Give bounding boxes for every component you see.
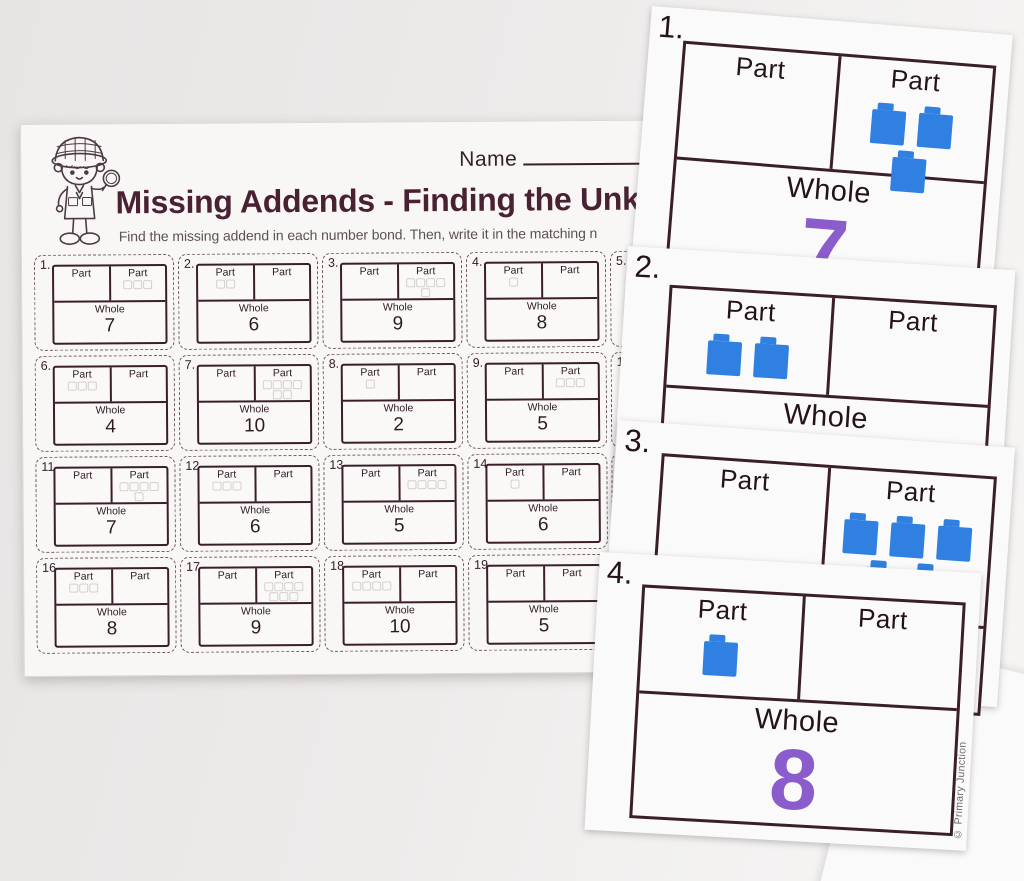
part-part-whole-box: Part Part Whole 6: [485, 463, 601, 544]
part-label: Part: [199, 468, 254, 480]
part-part-whole-box: Part Part Whole 10: [197, 364, 313, 445]
whole-label: Whole: [200, 605, 311, 618]
part-part-whole-box: Part Part Whole 10: [342, 565, 458, 646]
faint-cube-group: [115, 482, 163, 501]
whole-label: Whole: [199, 403, 310, 416]
bond-number-label: 7.: [185, 358, 196, 372]
part-label: Part: [662, 459, 827, 501]
part-part-whole-box: Part Part Whole 7: [52, 264, 168, 345]
part-cell-right: Part: [110, 468, 167, 502]
part-label: Part: [401, 568, 456, 580]
part-part-whole-box: Part Part Whole 4: [53, 365, 169, 446]
whole-label: Whole: [486, 300, 597, 313]
faint-cube-icon: [263, 380, 272, 389]
whole-cell: Whole 9: [342, 300, 453, 341]
part-cell-right: Part: [826, 298, 994, 405]
whole-value: 5: [344, 515, 455, 537]
parts-row: Part Part: [56, 569, 167, 606]
faint-cube-icon: [140, 482, 149, 491]
part-cell-right: Part: [543, 566, 600, 600]
worksheet-title: Missing Addends - Finding the Unk: [115, 181, 639, 222]
part-label: Part: [198, 266, 253, 278]
number-bond: 18. Part Part Whole 10: [324, 555, 465, 652]
faint-cube-icon: [290, 592, 299, 601]
part-label: Part: [543, 365, 598, 377]
part-cell-right: Part: [255, 568, 312, 602]
part-cell-left: Part: [343, 365, 398, 399]
faint-cube-group: [491, 479, 539, 488]
faint-cube-group: [403, 480, 451, 489]
card-number-label: 2.: [634, 248, 662, 286]
bond-number-label: 9.: [473, 356, 484, 370]
part-label: Part: [542, 264, 597, 276]
whole-value: 2: [343, 414, 454, 436]
faint-cube-icon: [274, 582, 283, 591]
faint-cube-icon: [428, 480, 437, 489]
number-bond: 8. Part Part Whole 2: [323, 353, 464, 450]
part-cell-right: Part: [541, 364, 598, 398]
whole-cell: Whole 6: [200, 503, 311, 544]
part-cell-left: Part: [343, 466, 398, 500]
part-part-whole-box: Part Part Whole 5: [341, 464, 457, 545]
part-label: Part: [838, 59, 992, 102]
faint-cube-icon: [216, 280, 225, 289]
faint-cube-icon: [566, 378, 575, 387]
name-row: Name: [459, 146, 660, 171]
number-bond: 2. Part Part Whole 6: [178, 253, 319, 350]
parts-row: Part Part: [488, 566, 599, 603]
whole-label: Whole: [55, 404, 166, 417]
faint-cube-group: [346, 379, 394, 388]
bond-number-label: 3.: [328, 256, 339, 270]
number-bond-grid: 1. Part Part Whole 7 2. Pa: [34, 251, 660, 667]
number-bond: 16. Part Part Whole 8: [36, 557, 177, 654]
whole-cell: Whole 10: [199, 402, 310, 443]
part-label: Part: [545, 567, 600, 579]
part-cell-right: Part: [540, 263, 597, 297]
part-label: Part: [544, 466, 599, 478]
whole-label: Whole: [54, 303, 165, 316]
whole-label: Whole: [343, 402, 454, 415]
part-label: Part: [344, 568, 399, 580]
part-cell-left: Part: [55, 367, 110, 401]
faint-cube-icon: [408, 480, 417, 489]
whole-value: 6: [488, 514, 599, 536]
faint-cube-icon: [352, 582, 361, 591]
number-bond: 1. Part Part Whole 7: [34, 254, 175, 351]
part-cell-right: Part: [254, 467, 311, 501]
part-cell-left: Part: [56, 569, 111, 603]
faint-cube-icon: [510, 480, 519, 489]
part-label: Part: [343, 366, 398, 378]
faint-cube-icon: [421, 288, 430, 297]
part-label: Part: [487, 466, 542, 478]
whole-value: 5: [488, 615, 599, 637]
parts-row: Part Part: [198, 265, 309, 302]
whole-label: Whole: [198, 302, 309, 315]
number-bond: 14. Part Part Whole 6: [467, 453, 608, 550]
number-bond: 9. Part Part Whole 5: [467, 352, 608, 449]
part-label: Part: [833, 301, 994, 342]
part-label: Part: [54, 267, 109, 279]
cube-group: [664, 639, 776, 679]
bond-number-label: 4.: [472, 255, 483, 269]
part-part-whole-box: Part Part Whole 9: [198, 566, 314, 647]
number-bond: 7. Part Part Whole 10: [179, 354, 320, 451]
parts-row: Part Part: [54, 266, 165, 303]
hat-dome: [55, 137, 103, 160]
faint-cube-icon: [232, 481, 241, 490]
faint-cube-icon: [79, 584, 88, 593]
part-cell-right: Part: [108, 266, 165, 300]
whole-cell: Whole 8: [632, 693, 956, 833]
part-label: Part: [254, 266, 309, 278]
whole-cell: Whole 6: [488, 501, 599, 542]
whole-cell: Whole 5: [344, 502, 455, 543]
card-number-label: 1.: [657, 9, 686, 47]
part-part-whole-box: Part Part Whole 7: [53, 466, 169, 547]
part-cell-left: Part: [55, 468, 110, 502]
faint-cube-icon: [294, 582, 303, 591]
part-label: Part: [111, 368, 166, 380]
part-cell-right: Part: [542, 465, 599, 499]
part-cell-left: Part: [199, 366, 254, 400]
faint-cube-icon: [78, 382, 87, 391]
faint-cube-icon: [212, 482, 221, 491]
part-part-whole-box: Part Part Whole 5: [486, 564, 602, 645]
number-bond: 12. Part Part Whole 6: [179, 455, 320, 552]
part-label: Part: [257, 569, 312, 581]
whole-value: 8: [56, 618, 167, 640]
whole-label: Whole: [344, 604, 455, 617]
part-cell-left: Part: [639, 588, 802, 700]
whole-value: 9: [342, 313, 453, 335]
part-label: Part: [55, 469, 110, 481]
part-label: Part: [199, 367, 254, 379]
part-label: Part: [398, 265, 453, 277]
parts-row: Part Part: [200, 568, 311, 605]
cube-group: [682, 339, 814, 381]
part-cell-left: Part: [488, 566, 543, 600]
faint-cube-icon: [416, 278, 425, 287]
whole-value: 10: [199, 415, 310, 437]
parts-row: Part Part: [342, 264, 453, 301]
part-cell-left: Part: [487, 364, 542, 398]
whole-value: 8: [486, 312, 597, 334]
parts-row: Part Part: [344, 567, 455, 604]
blue-cube-icon: [870, 109, 907, 146]
part-part-whole-box: Part Part Whole 6: [196, 263, 312, 344]
part-label: Part: [343, 467, 398, 479]
number-bond: 17. Part Part Whole 9: [180, 556, 321, 653]
hat-brim: [52, 153, 106, 167]
part-label: Part: [112, 469, 167, 481]
bond-number-label: 2.: [184, 257, 195, 271]
blue-cube-icon: [917, 113, 954, 150]
faint-cube-icon: [382, 581, 391, 590]
number-bond: 11. Part Part Whole 7: [35, 456, 176, 553]
cube-group: [826, 648, 936, 654]
faint-cube-group: [547, 378, 595, 387]
faint-cube-group: [114, 280, 162, 289]
part-label: Part: [200, 569, 255, 581]
faint-cube-icon: [120, 482, 129, 491]
part-cell-left: Part: [199, 467, 254, 501]
faint-cube-icon: [69, 584, 78, 593]
whole-value: 4: [55, 416, 166, 438]
part-label: Part: [255, 367, 310, 379]
whole-value: 6: [200, 516, 311, 538]
whole-cell: Whole 8: [486, 299, 597, 340]
faint-cube-icon: [406, 278, 415, 287]
part-cell-left: Part: [344, 567, 399, 601]
faint-cube-icon: [576, 378, 585, 387]
bond-number-label: 8.: [329, 357, 340, 371]
part-label: Part: [487, 365, 542, 377]
faint-cube-icon: [438, 480, 447, 489]
parts-row: Part Part: [55, 468, 166, 505]
part-label: Part: [55, 368, 110, 380]
number-bond: 19. Part Part Whole 5: [468, 554, 609, 651]
part-label: Part: [488, 567, 543, 579]
part-cell-left: Part: [666, 288, 831, 395]
whole-label: Whole: [200, 504, 311, 517]
part-cell-left: Part: [487, 465, 542, 499]
faint-cube-group: [347, 581, 395, 590]
parts-row: Part Part: [487, 465, 598, 502]
task-card: 4. Part Part Whole 8 © Primary Junction: [584, 552, 981, 851]
part-cell-right: Part: [829, 56, 993, 181]
part-part-whole-box: Part Part Whole 8: [54, 567, 170, 648]
part-label: Part: [256, 468, 311, 480]
whole-label: Whole: [487, 401, 598, 414]
whole-value: 6: [198, 314, 309, 336]
parts-row: Part Part: [55, 367, 166, 404]
part-label: Part: [643, 591, 802, 631]
part-cell-left: Part: [54, 266, 109, 300]
faint-cube-icon: [372, 581, 381, 590]
faint-cube-icon: [509, 278, 518, 287]
card-number-label: 3.: [623, 423, 651, 461]
whole-cell: Whole 9: [200, 604, 311, 645]
whole-cell: Whole 7: [56, 504, 167, 545]
faint-cube-icon: [436, 278, 445, 287]
faint-cube-group: [201, 279, 249, 288]
faint-cube-icon: [273, 390, 282, 399]
part-part-whole-box: Part Part Whole 8: [629, 584, 966, 836]
parts-row: Part Part: [199, 467, 310, 504]
part-cell-right: Part: [797, 596, 963, 708]
number-bond: 4. Part Part Whole 8: [466, 251, 607, 348]
bond-number-label: 5.: [616, 254, 627, 268]
number-bond: 13. Part Part Whole 5: [323, 454, 464, 551]
part-label: Part: [113, 570, 168, 582]
blue-cube-icon: [843, 519, 879, 555]
faint-cube-icon: [283, 390, 292, 399]
faint-cube-icon: [264, 582, 273, 591]
part-cell-left: Part: [486, 263, 541, 297]
whole-value: 10: [344, 616, 455, 638]
faint-cube-icon: [366, 380, 375, 389]
faint-cube-icon: [270, 592, 279, 601]
whole-value: 7: [54, 315, 165, 337]
part-label: Part: [486, 264, 541, 276]
faint-cube-icon: [280, 592, 289, 601]
faint-cube-icon: [130, 482, 139, 491]
whole-cell: Whole 2: [343, 401, 454, 442]
whole-value: 7: [56, 517, 167, 539]
cube-group: [663, 506, 823, 517]
faint-cube-icon: [89, 583, 98, 592]
faint-cube-group: [402, 278, 450, 297]
faint-cube-icon: [283, 380, 292, 389]
faint-cube-group: [58, 381, 106, 390]
card-number-label: 4.: [606, 554, 634, 591]
part-part-whole-box: Part Part Whole 5: [485, 362, 601, 443]
faint-cube-icon: [150, 482, 159, 491]
whole-label: Whole: [56, 606, 167, 619]
faint-cube-icon: [284, 582, 293, 591]
whole-cell: Whole 8: [56, 605, 167, 646]
blue-cube-icon: [889, 522, 925, 558]
worksheet-instructions: Find the missing addend in each number b…: [119, 225, 598, 244]
part-cell-right: Part: [109, 367, 166, 401]
whole-label: Whole: [488, 502, 599, 515]
cube-group: [846, 349, 976, 357]
bond-number-label: 1.: [40, 258, 51, 272]
whole-cell: Whole 5: [487, 400, 598, 441]
parts-row: Part Part: [486, 263, 597, 300]
whole-cell: Whole 5: [488, 602, 599, 643]
faint-cube-icon: [293, 380, 302, 389]
photo-scene: Name Missing Addends - Finding the Unk F…: [0, 0, 1024, 881]
faint-cube-icon: [88, 381, 97, 390]
part-part-whole-box: Part Part Whole 6: [197, 465, 313, 546]
name-label: Name: [459, 148, 517, 171]
faint-cube-icon: [362, 582, 371, 591]
faint-cube-icon: [426, 278, 435, 287]
blue-cube-icon: [753, 343, 789, 379]
part-cell-right: Part: [398, 466, 455, 500]
part-cell-right: Part: [111, 569, 168, 603]
part-label: Part: [56, 570, 111, 582]
part-cell-left: Part: [198, 265, 253, 299]
part-label: Part: [683, 47, 837, 90]
whole-label: Whole: [342, 301, 453, 314]
whole-cell: Whole 10: [344, 603, 455, 644]
part-label: Part: [111, 267, 166, 279]
part-cell-left: Part: [677, 44, 838, 169]
worksheet-page: Name Missing Addends - Finding the Unk F…: [20, 120, 660, 677]
whole-value: 9: [200, 617, 311, 639]
faint-cube-icon: [556, 378, 565, 387]
whole-label: Whole: [344, 503, 455, 516]
blue-cube-icon: [706, 340, 742, 376]
parts-row: Part Part: [343, 365, 454, 402]
whole-cell: Whole 6: [198, 301, 309, 342]
blue-cube-icon: [936, 526, 972, 562]
whole-cell: Whole 4: [55, 403, 166, 444]
part-label: Part: [828, 471, 993, 513]
faint-cube-group: [259, 380, 307, 399]
part-label: Part: [342, 265, 397, 277]
part-cell-left: Part: [200, 568, 255, 602]
number-bond: 3. Part Part Whole 9: [322, 252, 463, 349]
whole-value: 5: [487, 413, 598, 435]
faint-cube-icon: [222, 482, 231, 491]
part-part-whole-box: Part Part Whole 8: [484, 261, 600, 342]
faint-cube-icon: [418, 480, 427, 489]
faint-cube-group: [489, 277, 537, 286]
faint-cube-icon: [143, 280, 152, 289]
faint-cube-icon: [135, 492, 144, 501]
parts-row: Part Part: [343, 466, 454, 503]
faint-cube-icon: [273, 380, 282, 389]
faint-cube-group: [59, 583, 107, 592]
bond-number-label: 6.: [41, 359, 52, 373]
part-cell-right: Part: [253, 366, 310, 400]
part-label: Part: [803, 600, 962, 640]
faint-cube-icon: [68, 382, 77, 391]
number-bond: 6. Part Part Whole 4: [35, 355, 176, 452]
part-cell-right: Part: [397, 365, 454, 399]
part-label: Part: [670, 291, 831, 332]
faint-cube-icon: [123, 280, 132, 289]
part-part-whole-box: Part Part Whole 9: [340, 262, 456, 343]
whole-value: 8: [632, 729, 954, 831]
faint-cube-group: [203, 481, 251, 490]
parts-row: Part Part: [199, 366, 310, 403]
part-cell-right: Part: [252, 265, 309, 299]
whole-label: Whole: [488, 603, 599, 616]
part-cell-right: Part: [399, 567, 456, 601]
faint-cube-icon: [226, 280, 235, 289]
whole-cell: Whole 7: [54, 302, 165, 343]
part-label: Part: [399, 366, 454, 378]
part-part-whole-box: Part Part Whole 2: [341, 363, 457, 444]
part-cell-left: Part: [342, 264, 397, 298]
part-cell-right: Part: [396, 264, 453, 298]
cube-group: [703, 95, 813, 104]
parts-row: Part Part: [487, 364, 598, 401]
faint-cube-icon: [133, 280, 142, 289]
faint-cube-group: [260, 582, 308, 601]
part-label: Part: [400, 467, 455, 479]
parts-row: Part Part: [639, 588, 962, 712]
whole-label: Whole: [56, 505, 167, 518]
blue-cube-icon: [702, 641, 738, 677]
